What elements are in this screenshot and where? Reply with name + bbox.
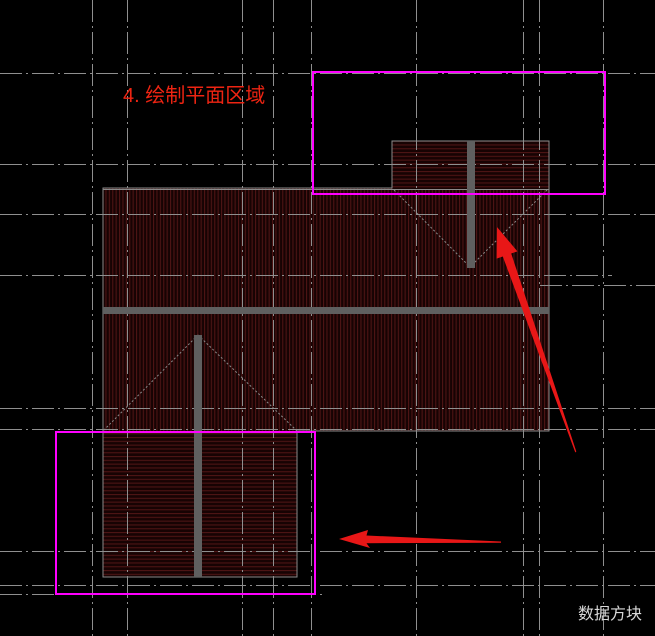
ridge-bar-horizontal[interactable] [103, 307, 549, 314]
ridge-bar-upper-gable[interactable] [467, 141, 475, 268]
annotation-arrow-left-icon [339, 530, 501, 548]
roof-plan-region[interactable] [103, 141, 549, 577]
step-label: 4. 绘制平面区域 [123, 84, 265, 107]
cad-drawing-area: 4. 绘制平面区域 数据方块 [0, 0, 655, 636]
watermark: 数据方块 [578, 605, 642, 623]
ridge-bar-lower-gable[interactable] [194, 335, 202, 577]
cad-viewport: 4. 绘制平面区域 数据方块 [0, 0, 655, 636]
